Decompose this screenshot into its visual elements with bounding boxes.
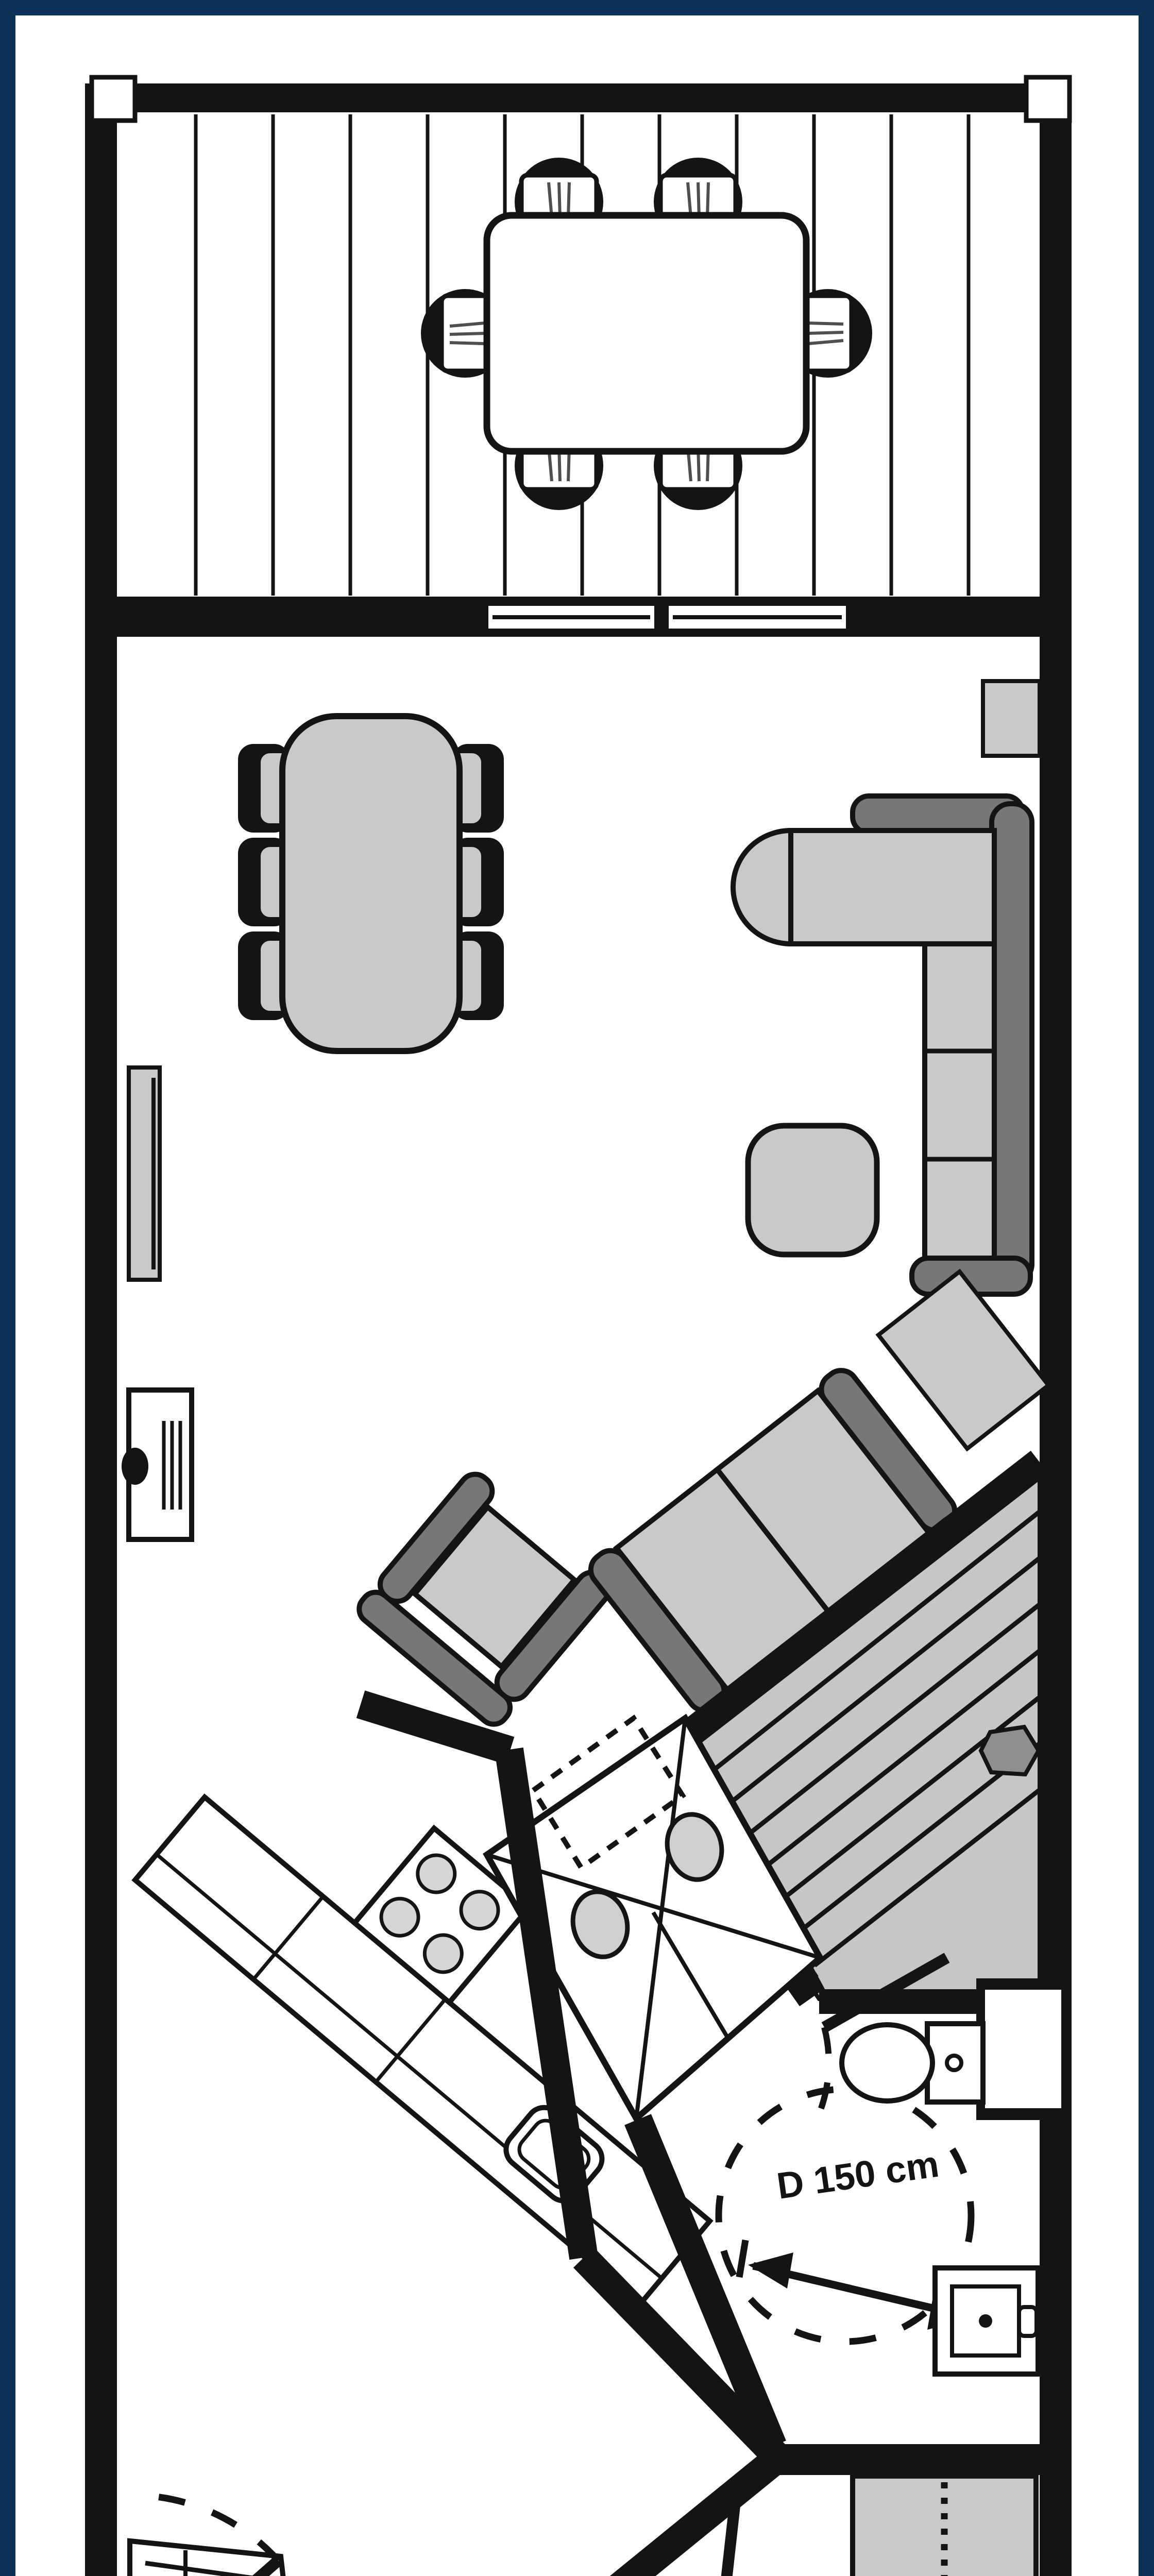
floorplan-page: D 150 cm	[0, 0, 1154, 2576]
terrace-wall-left	[85, 83, 117, 599]
sideboard-icon	[983, 681, 1040, 756]
terrace-dining-set	[421, 158, 872, 510]
corner-post-icon	[1026, 77, 1070, 121]
floorplan-drawing: D 150 cm	[0, 0, 1154, 2576]
dining-table-icon	[282, 716, 460, 1051]
terrace	[85, 77, 1072, 599]
newel-icon	[981, 1727, 1039, 1774]
toilet-icon	[819, 1978, 1072, 2120]
main-wall-left	[85, 597, 117, 2576]
floor-mat-icon	[878, 1272, 1048, 1449]
corner-post-icon	[92, 77, 135, 121]
armchair-icon	[353, 1468, 615, 1730]
dining-set	[238, 716, 504, 1051]
coffee-table-icon	[748, 1126, 877, 1255]
living-dining-room	[122, 681, 1040, 1539]
terrace-wall-right	[1040, 83, 1072, 599]
terrace-wall-top	[85, 83, 1072, 112]
main-wall-right	[1040, 597, 1072, 2576]
bath-bottom-wall	[770, 2444, 1040, 2475]
intercom-panel-icon	[122, 1390, 192, 1539]
bath-circle-label: D 150 cm	[774, 2144, 941, 2207]
bathroom: D 150 cm	[719, 1958, 1072, 2374]
wardrobe-icon	[853, 2476, 1036, 2576]
terrace-table-icon	[487, 215, 806, 451]
washbasin-icon	[935, 2268, 1038, 2374]
